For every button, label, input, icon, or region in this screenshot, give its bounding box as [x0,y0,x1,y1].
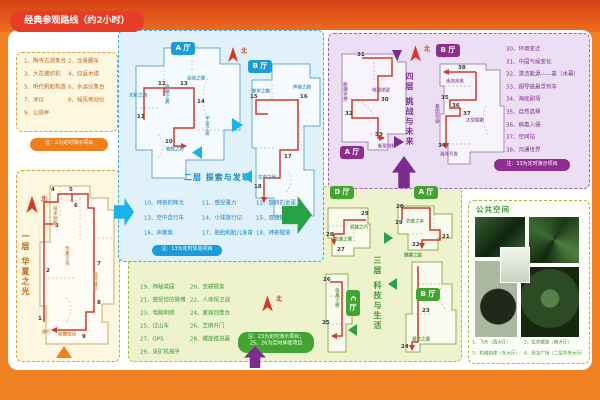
zone-label: 数学之魅 [252,89,270,94]
zone-label: 物质之妙 [166,147,184,152]
note-text: 注：33为定时演示项目 [494,161,570,167]
stop-number: 18 [254,184,262,190]
compass-north-icon: 北 [226,46,247,64]
exhibit-item: 11、感受重力 [202,200,232,208]
stop-number: 31 [357,52,365,58]
stop-number: 7 [97,261,101,267]
stop-number: 13 [180,81,188,87]
stop-number: 30 [381,97,389,103]
stop-number: 22 [412,242,420,248]
floor2-title: 二层 探索与发现 [184,172,251,183]
exhibit-item: 27、GPS [140,336,168,343]
compass-north-icon: 北 [408,44,430,64]
exhibit-item: 23、电脑刺绣 [140,310,168,317]
floor2-note-pill: 注：13为定时体验项目 [152,245,222,256]
exhibit-list-floor3: 19、神秘菜园 20、农耕撷英 21、感受您的脉搏 22、人体保卫战 23、电脑… [140,284,256,362]
stop-number: 20 [396,204,404,210]
stop-number: 27 [337,247,345,253]
zone-label: 机械之巧 [350,225,368,230]
exhibit-item: 3、大花楼织机 [24,71,48,78]
zone-label: 能源世界 [342,82,347,102]
public-space-captions: 1、飞天（西大厅） 2、生命螺旋（南大厅） 3、机械韵律（东大厅） 4、恐龙广场… [472,340,586,362]
note-text: 注：3为定时演示项目 [30,140,108,146]
exhibit-item: 17、胚胎和胎儿发育 [202,230,232,238]
exhibit-item: 7、浑仪 [24,97,48,104]
zone-label: 电磁之奥 [164,84,169,104]
floor3a-outline [398,206,452,250]
exhibit-item: 33、超导磁悬浮列车 [506,84,552,91]
north-arrow-icon [260,294,275,314]
floor3-title: 三层 科技与生活 [372,256,383,340]
stop-number: 19 [395,220,403,226]
note-text: 注：13为定时体验项目 [152,246,222,252]
hall-c-bubble: C 厅 [346,290,360,316]
compass-north-icon: 北 [260,294,282,314]
zone-label: 交通之便 [334,237,352,242]
zone-label: 海洋开发 [440,152,458,157]
zone-label: 衣食之本 [406,219,424,224]
floor3-map-hall-a: 20 19 21 22 [394,198,458,256]
zone-label: 华夏之光 [64,246,69,266]
floor1-note-pill: 注：3为定时演示项目 [30,138,108,151]
exhibit-item: 28、螺旋推进器 [190,336,226,343]
note-line: 注：23为定时演示项目； [238,334,314,340]
hall-b-bubble: B 厅 [436,44,460,57]
caption-item: 3、机械韵律（东大厅） [472,351,495,356]
stop-number: 10 [165,139,173,145]
hall-d-bubble: D 厅 [330,186,354,199]
hall-a-bubble: A 厅 [340,146,364,159]
exhibit-item: 19、神秘菜园 [140,284,168,291]
stop-number: 2 [46,268,50,274]
stop-number: 6 [74,203,78,209]
north-arrow-icon [408,44,423,64]
exhibit-item: 29、采矿机械手 [140,349,168,356]
exhibit-item: 26、芝麻开门 [190,323,226,330]
floor4-title: 四层 挑战与未来 [404,72,415,162]
stop-number: 29 [361,211,369,217]
exhibit-item: 22、人体保卫战 [190,297,226,304]
exhibit-item: 8、候风地动仪 [68,97,92,104]
zone-label: 太空探索 [466,118,484,123]
exhibit-item: 35、自然选择 [506,109,552,116]
stop-number: 26 [323,277,331,283]
photo-small-detail [500,247,530,283]
exhibit-item: 4、应县木塔 [68,71,92,78]
hall-b-bubble: B 厅 [248,60,272,73]
exhibit-item: 34、海底剧场 [506,96,552,103]
stop-number: 32 [345,111,353,117]
exhibit-item: 31、中国气候变化 [506,59,552,66]
caption-item: 4、恐龙广场（二层中央大厅） [524,351,552,356]
exhibit-item: 30、环境变迁 [506,46,552,53]
stop-number: 36 [452,103,460,109]
floor4-note-pill: 注：33为定时演示项目 [494,159,570,171]
zone-label: 光影之趣 [129,93,147,98]
photo-life-spiral [528,216,580,264]
zone-label: 休憩空间 [58,332,76,337]
hall-a-bubble: A 厅 [414,186,438,199]
stop-number: 25 [322,320,330,326]
exhibit-item: 13、空中自行车 [144,215,176,223]
stop-number: 38 [458,65,466,71]
hall-a-bubble: A 厅 [171,42,195,55]
stop-number: 33 [375,132,383,138]
exhibit-item: 14、小球旅行记 [202,215,232,223]
stop-number: 1 [38,316,42,322]
stop-number: 21 [442,234,450,240]
zone-label: 基因生命 [434,104,439,124]
exhibit-item: 6、水运仪象台 [68,84,92,91]
exhibit-item: 32、清洁能源——氢（水幕） [506,71,552,78]
note-line: 25、26为定时体验项目 [238,340,314,346]
exhibit-item: 37、空间站 [506,134,552,141]
exhibit-item: 9、公道杯 [24,110,48,117]
stop-number: 14 [197,99,205,105]
zone-label: 声音之韵 [293,85,311,90]
floor3-map-hall-b: 23 24 [398,256,460,360]
caption-item: 1、飞天（西大厅） [472,340,495,345]
exhibit-item: 21、感受您的脉搏 [140,297,168,304]
floor1-title: 一层 华夏之光 [20,232,31,344]
stop-number: 11 [137,114,145,120]
public-space-photos [474,216,580,338]
exhibit-item: 2、龙骨翻车 [68,58,92,65]
exhibit-list-floor1: 1、陶寺古观象台 3、大花楼织机 5、明代帆船构造 7、浑仪 9、公道杯 2、龙… [24,58,112,123]
route-poster: 经典参观路线（约2小时） 1、陶寺古观象台 3、大花楼织机 5、明代帆船构造 7… [0,0,600,400]
caption-item: 2、生命螺旋（南大厅） [524,340,552,345]
stop-number: 8 [97,300,101,306]
public-space-title: 公共空间 [476,204,510,215]
stop-number: 4 [51,187,55,193]
exhibit-item: 10、神奇的辉光 [144,200,176,208]
zone-label: 走向未来 [446,79,464,84]
compass-north-icon: 北 [24,194,47,216]
stop-number: 37 [463,111,471,117]
exhibit-item: 5、明代帆船构造 [24,84,48,91]
hall-b-bubble: B 厅 [416,288,440,301]
exhibit-item: 16、声聚焦 [144,230,176,238]
zone-label: 地球述说 [372,88,390,93]
zone-label: 居家之道 [412,337,430,342]
exhibit-item: 36、病毒入侵 [506,122,552,129]
exhibit-item: 18、神奇隧道 [256,230,289,238]
stop-number: 15 [250,94,258,100]
north-arrow-icon [226,46,240,64]
north-label: 北 [276,294,282,303]
exhibit-list-floor4: 30、环境变迁 31、中国气候变化 32、清洁能源——氢（水幕） 33、超导磁悬… [506,46,590,159]
page-title: 经典参观路线（约2小时） [10,11,144,32]
north-arrow-icon [24,194,40,216]
zone-label: 临时展厅 [92,272,97,292]
zone-label: 技术创新 [52,206,57,226]
north-label: 北 [41,194,47,203]
exhibit-item: 24、家居创意台 [190,310,226,317]
note-text: 注：23为定时演示项目； 25、26为定时体验项目 [238,334,314,347]
stop-number: 34 [438,143,446,149]
exhibit-item: 25、过山车 [140,323,168,330]
stop-number: 28 [326,232,334,238]
stop-number: 23 [422,308,430,314]
bottom-band [0,368,600,400]
stop-number: 9 [82,334,86,340]
zone-label: 生命之秘 [258,175,276,180]
zone-label: 健康之路 [404,253,422,258]
stop-number: 17 [284,154,292,160]
exhibit-item: 20、农耕撷英 [190,284,226,291]
stop-number: 35 [441,95,449,101]
stop-number: 24 [401,344,409,350]
floor2a-outline [136,48,240,178]
exhibit-item: 1、陶寺古观象台 [24,58,48,65]
zone-label: 信息之桥 [334,288,339,308]
stop-number: 5 [69,187,73,193]
zone-label: 序厅 [42,330,51,335]
north-label: 北 [424,44,430,53]
exhibit-item: 38、沟通世界 [506,147,552,154]
zone-label: 新型材料 [378,144,396,149]
zone-label: 运动之律 [187,76,205,81]
stop-number: 16 [300,94,308,100]
zone-label: 宇宙之奇 [204,116,209,136]
floor3-note-pill: 注：23为定时演示项目； 25、26为定时体验项目 [238,332,314,353]
north-label: 北 [241,46,247,55]
